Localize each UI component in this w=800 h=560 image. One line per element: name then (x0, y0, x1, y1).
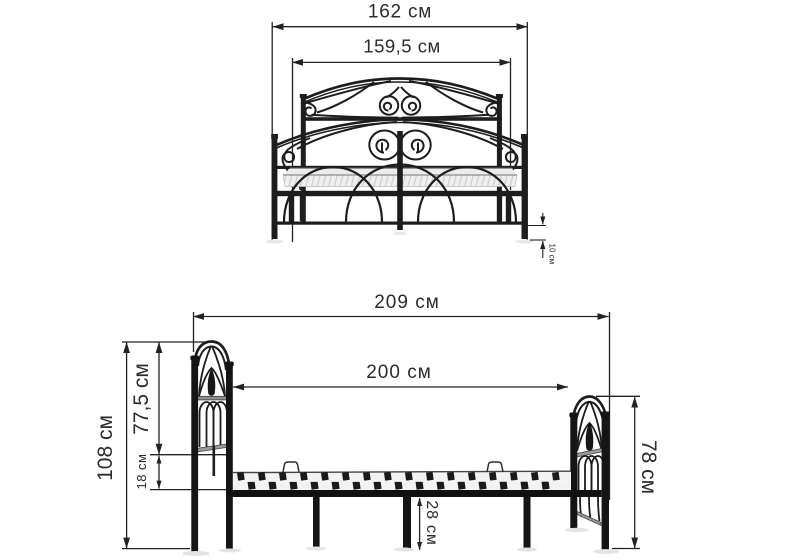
svg-text:162 см: 162 см (368, 2, 432, 23)
svg-text:200 см: 200 см (366, 362, 432, 383)
svg-text:18 см: 18 см (134, 453, 149, 489)
svg-text:78 см: 78 см (637, 440, 660, 494)
svg-text:159,5 см: 159,5 см (363, 36, 440, 57)
svg-text:28 см: 28 см (423, 500, 440, 545)
svg-text:10 см: 10 см (548, 244, 557, 265)
svg-text:209 см: 209 см (374, 292, 440, 313)
svg-text:108 см: 108 см (94, 415, 117, 481)
svg-text:77,5 см: 77,5 см (130, 363, 153, 435)
